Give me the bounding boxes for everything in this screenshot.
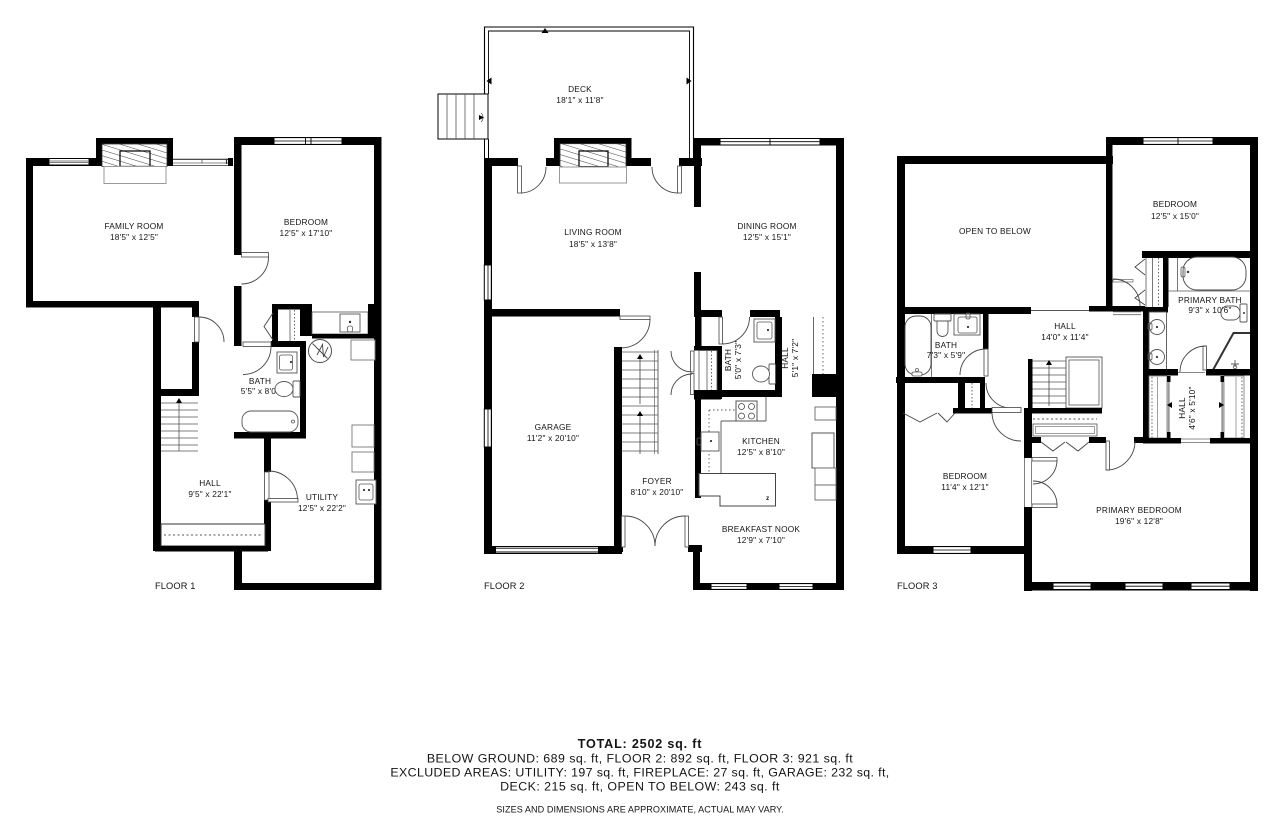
svg-text:5'5" x 8'0": 5'5" x 8'0" xyxy=(241,386,279,396)
svg-text:12'5" x 17'10": 12'5" x 17'10" xyxy=(280,228,333,238)
svg-text:DINING ROOM: DINING ROOM xyxy=(737,221,796,231)
svg-text:19'6" x 12'8": 19'6" x 12'8" xyxy=(1115,516,1163,526)
svg-text:OPEN TO BELOW: OPEN TO BELOW xyxy=(959,226,1031,236)
svg-text:11'2" x 20'10": 11'2" x 20'10" xyxy=(527,433,579,443)
svg-text:EXCLUDED AREAS: UTILITY: 197 s: EXCLUDED AREAS: UTILITY: 197 sq. ft, FIR… xyxy=(390,766,889,780)
svg-text:4'6" x 5'10": 4'6" x 5'10" xyxy=(1187,386,1197,429)
svg-text:HALL: HALL xyxy=(1054,321,1076,331)
svg-text:DECK: DECK xyxy=(568,84,592,94)
svg-text:14'0" x 11'4": 14'0" x 11'4" xyxy=(1041,332,1089,342)
svg-text:12'9" x 7'10": 12'9" x 7'10" xyxy=(737,535,785,545)
svg-text:BEDROOM: BEDROOM xyxy=(284,217,328,227)
svg-text:HALL: HALL xyxy=(1177,397,1187,419)
svg-text:12'5" x 15'1": 12'5" x 15'1" xyxy=(743,232,791,242)
svg-text:HALL: HALL xyxy=(199,478,221,488)
svg-text:FLOOR 3: FLOOR 3 xyxy=(897,581,937,591)
svg-text:FLOOR 2: FLOOR 2 xyxy=(484,581,524,591)
svg-text:TOTAL: 2502 sq. ft: TOTAL: 2502 sq. ft xyxy=(578,737,703,751)
svg-text:BATH: BATH xyxy=(935,340,957,350)
svg-text:PRIMARY BATH: PRIMARY BATH xyxy=(1178,295,1242,305)
svg-text:PRIMARY BEDROOM: PRIMARY BEDROOM xyxy=(1096,505,1182,515)
svg-text:11'4" x 12'1": 11'4" x 12'1" xyxy=(941,482,989,492)
svg-text:FOYER: FOYER xyxy=(642,476,672,486)
svg-text:8'10" x 20'10": 8'10" x 20'10" xyxy=(631,487,684,497)
svg-text:HALL: HALL xyxy=(780,347,790,369)
svg-text:7'3" x 5'9": 7'3" x 5'9" xyxy=(927,350,965,360)
svg-text:BATH: BATH xyxy=(249,376,271,386)
svg-text:BELOW GROUND: 689 sq. ft, FLOO: BELOW GROUND: 689 sq. ft, FLOOR 2: 892 s… xyxy=(427,752,853,766)
svg-text:12'5" x 22'2": 12'5" x 22'2" xyxy=(298,503,346,513)
svg-text:5'0" x 7'3": 5'0" x 7'3" xyxy=(733,341,743,379)
svg-text:18'5" x 13'8": 18'5" x 13'8" xyxy=(569,239,617,249)
svg-text:UTILITY: UTILITY xyxy=(306,492,339,502)
svg-text:9'3" x 10'6": 9'3" x 10'6" xyxy=(1188,305,1231,315)
svg-text:5'1" x 7'2": 5'1" x 7'2" xyxy=(790,339,800,377)
svg-text:KITCHEN: KITCHEN xyxy=(742,436,780,446)
svg-text:12'5" x 8'10": 12'5" x 8'10" xyxy=(737,447,785,457)
svg-text:FLOOR 1: FLOOR 1 xyxy=(155,581,195,591)
svg-text:18'5" x 12'5": 18'5" x 12'5" xyxy=(110,232,158,242)
svg-text:SIZES AND DIMENSIONS ARE APPRO: SIZES AND DIMENSIONS ARE APPROXIMATE, AC… xyxy=(496,805,783,815)
svg-text:BEDROOM: BEDROOM xyxy=(943,471,987,481)
svg-text:18'1" x 11'8": 18'1" x 11'8" xyxy=(556,95,604,105)
svg-text:12'5" x 15'0": 12'5" x 15'0" xyxy=(1151,211,1199,221)
svg-text:GARAGE: GARAGE xyxy=(535,422,572,432)
svg-text:LIVING ROOM: LIVING ROOM xyxy=(564,227,622,237)
svg-text:DECK: 215 sq. ft, OPEN TO BELO: DECK: 215 sq. ft, OPEN TO BELOW: 243 sq.… xyxy=(500,780,780,794)
svg-text:BREAKFAST NOOK: BREAKFAST NOOK xyxy=(722,524,801,534)
svg-text:9'5" x 22'1": 9'5" x 22'1" xyxy=(188,489,231,499)
svg-text:FAMILY ROOM: FAMILY ROOM xyxy=(104,221,163,231)
svg-text:BATH: BATH xyxy=(723,349,733,371)
svg-text:BEDROOM: BEDROOM xyxy=(1153,199,1197,209)
